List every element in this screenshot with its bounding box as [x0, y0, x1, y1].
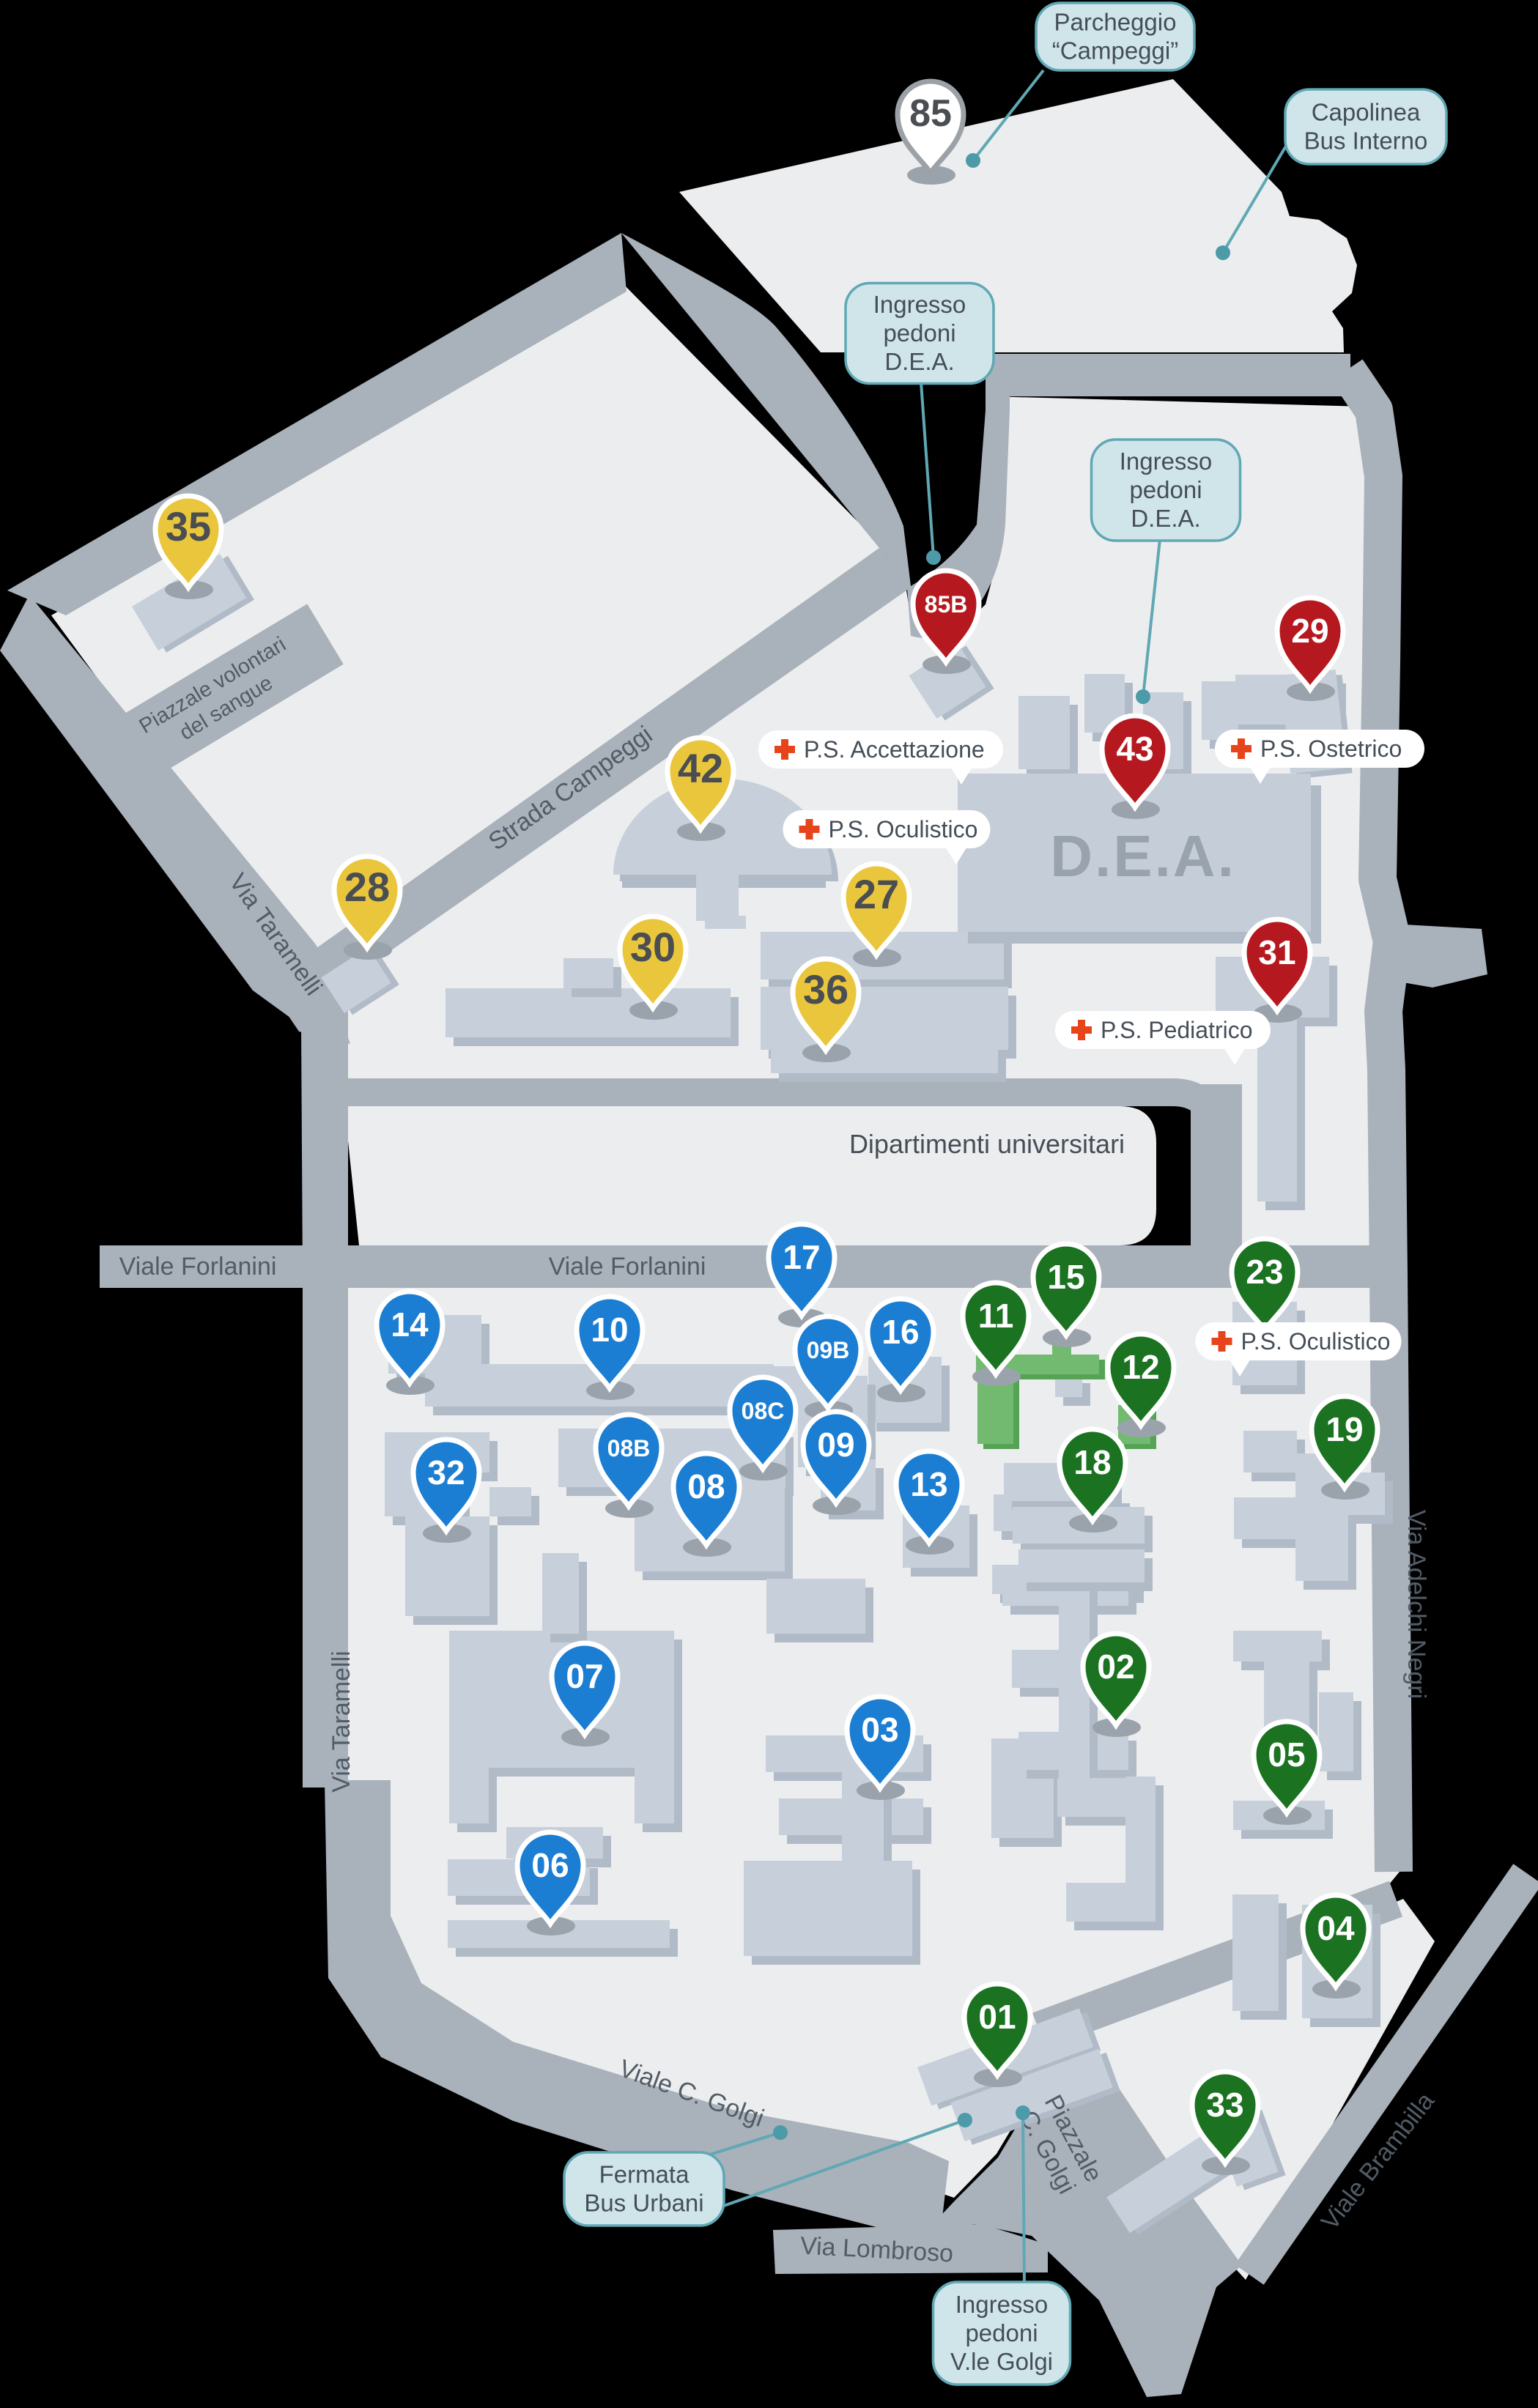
svg-text:V.le Golgi: V.le Golgi — [950, 2348, 1053, 2375]
svg-text:Via Taramelli: Via Taramelli — [328, 1651, 355, 1792]
svg-text:04: 04 — [1317, 1909, 1355, 1947]
svg-text:Ingresso: Ingresso — [1120, 448, 1213, 475]
svg-text:14: 14 — [391, 1305, 429, 1344]
svg-text:01: 01 — [978, 1998, 1016, 2036]
svg-text:16: 16 — [881, 1313, 919, 1351]
svg-text:13: 13 — [910, 1465, 947, 1503]
svg-text:12: 12 — [1122, 1348, 1159, 1386]
svg-text:P.S. Accettazione: P.S. Accettazione — [804, 736, 985, 763]
svg-text:“Campeggi”: “Campeggi” — [1052, 37, 1178, 64]
svg-text:35: 35 — [166, 503, 211, 549]
svg-text:85B: 85B — [925, 591, 968, 618]
svg-text:09B: 09B — [807, 1337, 850, 1363]
svg-text:19: 19 — [1326, 1410, 1363, 1448]
svg-text:P.S. Ostetrico: P.S. Ostetrico — [1260, 736, 1402, 762]
svg-text:06: 06 — [531, 1846, 569, 1884]
svg-text:85: 85 — [909, 92, 952, 135]
svg-text:07: 07 — [566, 1657, 603, 1695]
svg-text:pedoni: pedoni — [883, 319, 955, 347]
svg-text:30: 30 — [630, 924, 676, 970]
svg-text:02: 02 — [1097, 1648, 1134, 1686]
svg-text:Fermata: Fermata — [599, 2161, 690, 2188]
svg-text:03: 03 — [861, 1711, 898, 1749]
svg-text:pedoni: pedoni — [1129, 476, 1202, 503]
svg-text:D.E.A.: D.E.A. — [1050, 823, 1236, 889]
svg-text:05: 05 — [1268, 1735, 1305, 1774]
svg-text:09: 09 — [817, 1426, 854, 1464]
svg-text:Viale Forlanini: Viale Forlanini — [119, 1253, 277, 1281]
svg-text:32: 32 — [427, 1453, 465, 1492]
svg-text:29: 29 — [1291, 612, 1328, 650]
svg-text:08B: 08B — [607, 1435, 651, 1462]
svg-text:18: 18 — [1073, 1443, 1111, 1481]
svg-text:28: 28 — [344, 864, 390, 910]
svg-text:D.E.A.: D.E.A. — [884, 348, 954, 375]
svg-text:P.S. Oculistico: P.S. Oculistico — [1241, 1328, 1391, 1355]
svg-text:11: 11 — [978, 1297, 1014, 1335]
svg-text:08C: 08C — [742, 1398, 785, 1424]
svg-text:P.S. Pediatrico: P.S. Pediatrico — [1101, 1017, 1253, 1043]
svg-text:43: 43 — [1116, 730, 1153, 768]
svg-text:Ingresso: Ingresso — [873, 291, 966, 318]
svg-text:17: 17 — [783, 1238, 820, 1276]
svg-text:42: 42 — [678, 745, 723, 791]
svg-text:Via Adelchi Negri: Via Adelchi Negri — [1402, 1510, 1430, 1699]
svg-text:Parcheggio: Parcheggio — [1054, 9, 1177, 36]
svg-text:Dipartimenti universitari: Dipartimenti universitari — [849, 1129, 1125, 1159]
svg-text:15: 15 — [1047, 1258, 1084, 1296]
svg-text:10: 10 — [591, 1311, 628, 1349]
svg-text:Capolinea: Capolinea — [1312, 99, 1421, 126]
svg-text:D.E.A.: D.E.A. — [1131, 505, 1200, 532]
svg-text:33: 33 — [1206, 2086, 1243, 2124]
svg-text:36: 36 — [803, 966, 849, 1012]
svg-text:31: 31 — [1258, 933, 1295, 971]
svg-text:Viale Forlanini: Viale Forlanini — [549, 1253, 706, 1281]
svg-text:P.S. Oculistico: P.S. Oculistico — [829, 816, 978, 842]
svg-text:pedoni: pedoni — [965, 2319, 1038, 2346]
svg-text:Bus Urbani: Bus Urbani — [584, 2190, 703, 2217]
svg-text:Ingresso: Ingresso — [955, 2291, 1049, 2318]
svg-text:08: 08 — [687, 1467, 725, 1505]
svg-text:27: 27 — [854, 871, 899, 917]
svg-text:23: 23 — [1246, 1253, 1283, 1291]
svg-text:Bus Interno: Bus Interno — [1304, 127, 1428, 155]
